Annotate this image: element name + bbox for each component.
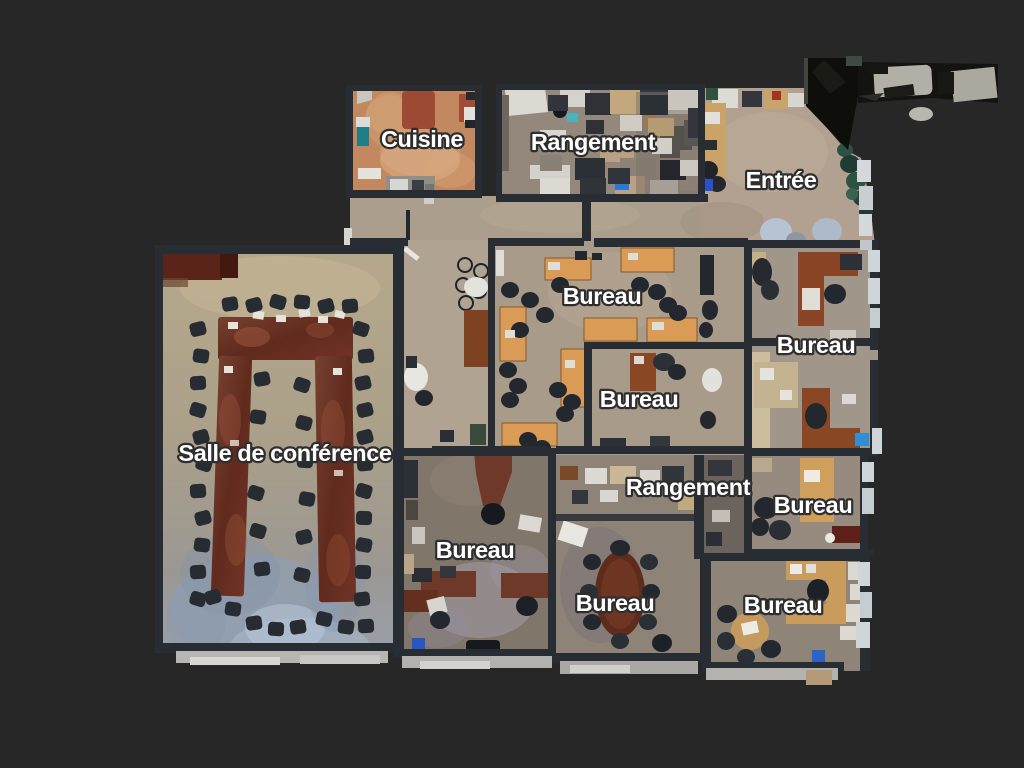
svg-text:Bureau: Bureau [744, 592, 823, 618]
svg-text:Entrée: Entrée [746, 167, 817, 193]
svg-text:Bureau: Bureau [600, 386, 679, 412]
svg-text:Bureau: Bureau [436, 537, 515, 563]
svg-text:Salle de conférence: Salle de conférence [178, 440, 391, 466]
svg-text:Bureau: Bureau [576, 590, 655, 616]
svg-text:Bureau: Bureau [774, 492, 853, 518]
svg-text:Cuisine: Cuisine [381, 126, 463, 152]
svg-text:Rangement: Rangement [531, 129, 656, 155]
svg-text:Bureau: Bureau [777, 332, 856, 358]
svg-text:Bureau: Bureau [563, 283, 642, 309]
svg-text:Rangement: Rangement [626, 474, 751, 500]
